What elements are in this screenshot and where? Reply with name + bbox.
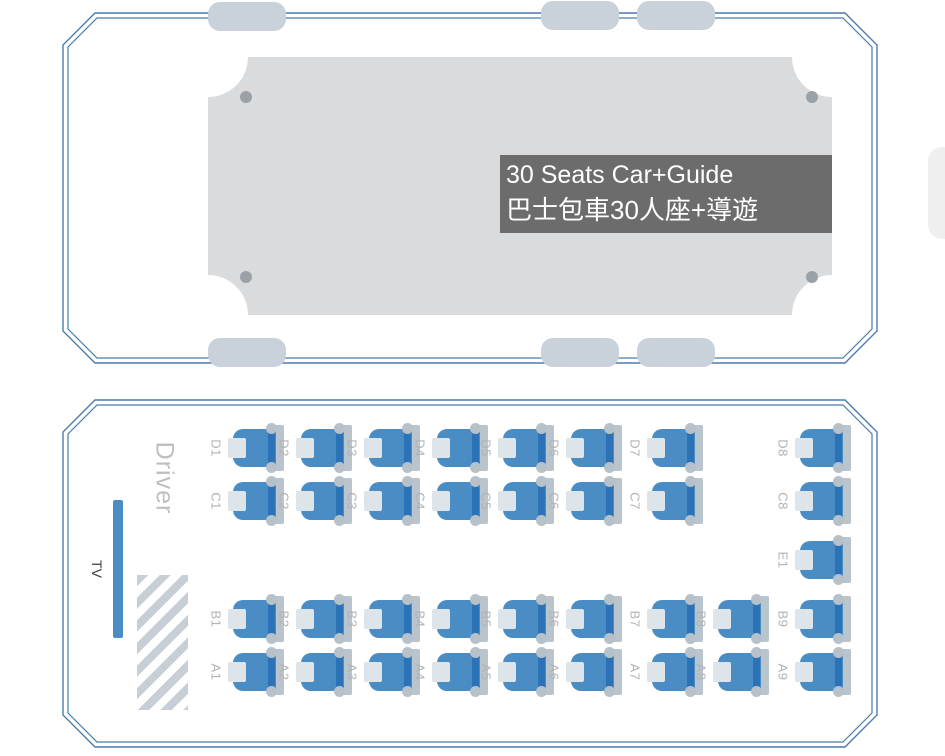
seat-label: C5 [479, 492, 494, 510]
seat-armrest-top-knob [266, 423, 277, 434]
seat-armrest-top-knob [685, 476, 696, 487]
seat-armrest-bottom-knob [833, 515, 844, 526]
seat-armrest-bottom-knob [334, 515, 345, 526]
seat-armrest-bottom-knob [833, 686, 844, 697]
seat-armrest-bottom-knob [470, 633, 481, 644]
roof-rivet-top-right [806, 91, 818, 103]
seat-label: C6 [547, 492, 562, 510]
seat-tray [432, 438, 450, 458]
seat-tray [432, 491, 450, 511]
seat-tray [795, 491, 813, 511]
roof-rivet-bottom-left [240, 271, 252, 283]
wheel-front-top [208, 2, 286, 31]
seat-A9[interactable]: A9 [795, 649, 853, 695]
seat-tray [647, 438, 665, 458]
roof-rivet-top-left [240, 91, 252, 103]
seat-tray [647, 609, 665, 629]
seat-A8[interactable]: A8 [713, 649, 771, 695]
seat-label: A6 [547, 664, 562, 681]
seat-label: D7 [628, 439, 643, 457]
seat-armrest-top-knob [470, 423, 481, 434]
seat-label: D5 [479, 439, 494, 457]
seat-label: D4 [413, 439, 428, 457]
wheel-rear2-bottom [637, 338, 715, 367]
seat-tray [296, 662, 314, 682]
seat-armrest-bottom-knob [685, 686, 696, 697]
seat-label: B3 [345, 611, 360, 628]
seat-label: C7 [628, 492, 643, 510]
seat-armrest-bottom-knob [266, 633, 277, 644]
seat-armrest-bottom-knob [536, 462, 547, 473]
seat-tray [498, 438, 516, 458]
seat-armrest-top-knob [685, 423, 696, 434]
bus-seatmap-infographic: 30 Seats Car+Guide 巴士包車30人座+導遊 Driver TV… [0, 0, 945, 756]
seat-label: D2 [277, 439, 292, 457]
seat-armrest-bottom-knob [402, 515, 413, 526]
seat-E1[interactable]: E1 [795, 537, 853, 583]
seat-armrest-top-knob [536, 647, 547, 658]
seat-armrest-bottom-knob [266, 515, 277, 526]
seat-tray [647, 491, 665, 511]
seat-label: B6 [547, 611, 562, 628]
seat-label: C3 [345, 492, 360, 510]
seat-tray [296, 491, 314, 511]
seat-armrest-bottom-knob [470, 462, 481, 473]
seat-tray [364, 609, 382, 629]
seat-armrest-top-knob [402, 647, 413, 658]
seat-armrest-bottom-knob [536, 686, 547, 697]
wheel-rear1-top [541, 1, 619, 30]
seat-label: A4 [413, 664, 428, 681]
seat-armrest-bottom-knob [833, 574, 844, 585]
seat-tray [364, 662, 382, 682]
seat-tray [647, 662, 665, 682]
seat-armrest-bottom-knob [402, 633, 413, 644]
seat-armrest-bottom-knob [402, 462, 413, 473]
seat-armrest-bottom-knob [402, 686, 413, 697]
roof-rivet-bottom-right [806, 271, 818, 283]
seat-label: B8 [694, 611, 709, 628]
seat-tray [713, 662, 731, 682]
seat-armrest-top-knob [604, 476, 615, 487]
seat-armrest-top-knob [833, 647, 844, 658]
seat-label: B1 [209, 611, 224, 628]
seat-armrest-top-knob [536, 594, 547, 605]
wheel-rear1-bottom [541, 338, 619, 367]
seat-armrest-bottom-knob [536, 633, 547, 644]
driver-label: Driver [150, 442, 179, 515]
tv-label: TV [89, 560, 105, 578]
seat-armrest-bottom-knob [751, 686, 762, 697]
seat-label: C1 [209, 492, 224, 510]
seat-tray [566, 438, 584, 458]
seat-armrest-top-knob [536, 423, 547, 434]
seat-tray [566, 662, 584, 682]
seat-armrest-bottom-knob [604, 633, 615, 644]
seat-armrest-bottom-knob [470, 686, 481, 697]
seat-tray [498, 491, 516, 511]
seat-armrest-top-knob [685, 594, 696, 605]
seat-armrest-bottom-knob [604, 462, 615, 473]
seat-label: E1 [776, 552, 791, 569]
seat-B9[interactable]: B9 [795, 596, 853, 642]
seat-armrest-top-knob [402, 476, 413, 487]
seat-armrest-top-knob [833, 423, 844, 434]
seat-armrest-top-knob [833, 594, 844, 605]
seat-armrest-bottom-knob [334, 633, 345, 644]
seat-armrest-top-knob [833, 535, 844, 546]
seat-armrest-top-knob [685, 647, 696, 658]
seat-label: D6 [547, 439, 562, 457]
seat-label: A9 [776, 664, 791, 681]
seat-label: A2 [277, 664, 292, 681]
seat-tray [228, 609, 246, 629]
seat-label: B5 [479, 611, 494, 628]
seat-armrest-bottom-knob [334, 462, 345, 473]
seat-B6[interactable]: B6 [566, 596, 624, 642]
seat-armrest-bottom-knob [266, 686, 277, 697]
seat-label: B2 [277, 611, 292, 628]
seat-tray [498, 662, 516, 682]
seat-armrest-top-knob [402, 423, 413, 434]
door-stairwell-hatch [137, 575, 188, 710]
seat-armrest-top-knob [751, 647, 762, 658]
seat-armrest-bottom-knob [334, 686, 345, 697]
seat-armrest-top-knob [266, 647, 277, 658]
seat-tray [432, 662, 450, 682]
seat-armrest-bottom-knob [751, 633, 762, 644]
seat-tray [795, 550, 813, 570]
product-label-chinese: 巴士包車30人座+導遊 [506, 192, 826, 228]
product-label-box: 30 Seats Car+Guide 巴士包車30人座+導遊 [500, 155, 832, 233]
seat-armrest-top-knob [833, 476, 844, 487]
seat-tray [795, 438, 813, 458]
seat-armrest-bottom-knob [604, 515, 615, 526]
seat-tray [432, 609, 450, 629]
seat-armrest-top-knob [334, 594, 345, 605]
seat-label: A7 [628, 664, 643, 681]
seat-label: D8 [776, 439, 791, 457]
seat-armrest-top-knob [470, 476, 481, 487]
seat-armrest-bottom-knob [685, 515, 696, 526]
seat-label: A5 [479, 664, 494, 681]
seat-label: C4 [413, 492, 428, 510]
seat-armrest-top-knob [536, 476, 547, 487]
seat-armrest-top-knob [334, 476, 345, 487]
seat-label: B7 [628, 611, 643, 628]
seat-C8[interactable]: C8 [795, 478, 853, 524]
seat-tray [566, 491, 584, 511]
seat-label: B9 [776, 611, 791, 628]
seat-tray [228, 438, 246, 458]
seat-label: A3 [345, 664, 360, 681]
seat-armrest-top-knob [402, 594, 413, 605]
seat-tray [795, 662, 813, 682]
seat-label: A1 [209, 664, 224, 681]
seat-armrest-bottom-knob [604, 686, 615, 697]
seat-label: A8 [694, 664, 709, 681]
seat-armrest-top-knob [751, 594, 762, 605]
seat-A6[interactable]: A6 [566, 649, 624, 695]
seat-label: D1 [209, 439, 224, 457]
seat-armrest-bottom-knob [536, 515, 547, 526]
product-label-english: 30 Seats Car+Guide [506, 158, 826, 192]
seat-armrest-bottom-knob [470, 515, 481, 526]
seat-armrest-top-knob [470, 594, 481, 605]
wheel-front-bottom [208, 338, 286, 367]
seat-D7[interactable]: D7 [647, 425, 705, 471]
seat-label: C2 [277, 492, 292, 510]
seat-tray [498, 609, 516, 629]
wheel-rear2-top [637, 1, 715, 30]
seat-tray [364, 491, 382, 511]
seat-C6[interactable]: C6 [566, 478, 624, 524]
seat-tray [296, 438, 314, 458]
seat-tray [566, 609, 584, 629]
seat-armrest-top-knob [604, 423, 615, 434]
edge-artifact-pill [928, 147, 945, 239]
seat-armrest-top-knob [334, 647, 345, 658]
tv-screen-bar [113, 500, 123, 638]
seat-tray [713, 609, 731, 629]
seat-armrest-top-knob [266, 594, 277, 605]
seat-armrest-top-knob [604, 647, 615, 658]
seat-tray [296, 609, 314, 629]
seat-D8[interactable]: D8 [795, 425, 853, 471]
seat-label: C8 [776, 492, 791, 510]
seat-label: D3 [345, 439, 360, 457]
seat-D6[interactable]: D6 [566, 425, 624, 471]
seat-armrest-bottom-knob [266, 462, 277, 473]
seat-armrest-bottom-knob [685, 633, 696, 644]
seat-armrest-top-knob [604, 594, 615, 605]
seat-armrest-bottom-knob [833, 633, 844, 644]
seat-armrest-top-knob [334, 423, 345, 434]
seat-armrest-top-knob [266, 476, 277, 487]
seat-armrest-bottom-knob [833, 462, 844, 473]
seat-tray [795, 609, 813, 629]
seat-label: B4 [413, 611, 428, 628]
seat-B8[interactable]: B8 [713, 596, 771, 642]
seat-armrest-top-knob [470, 647, 481, 658]
seat-armrest-bottom-knob [685, 462, 696, 473]
seat-tray [364, 438, 382, 458]
seat-C7[interactable]: C7 [647, 478, 705, 524]
seat-tray [228, 491, 246, 511]
seat-tray [228, 662, 246, 682]
